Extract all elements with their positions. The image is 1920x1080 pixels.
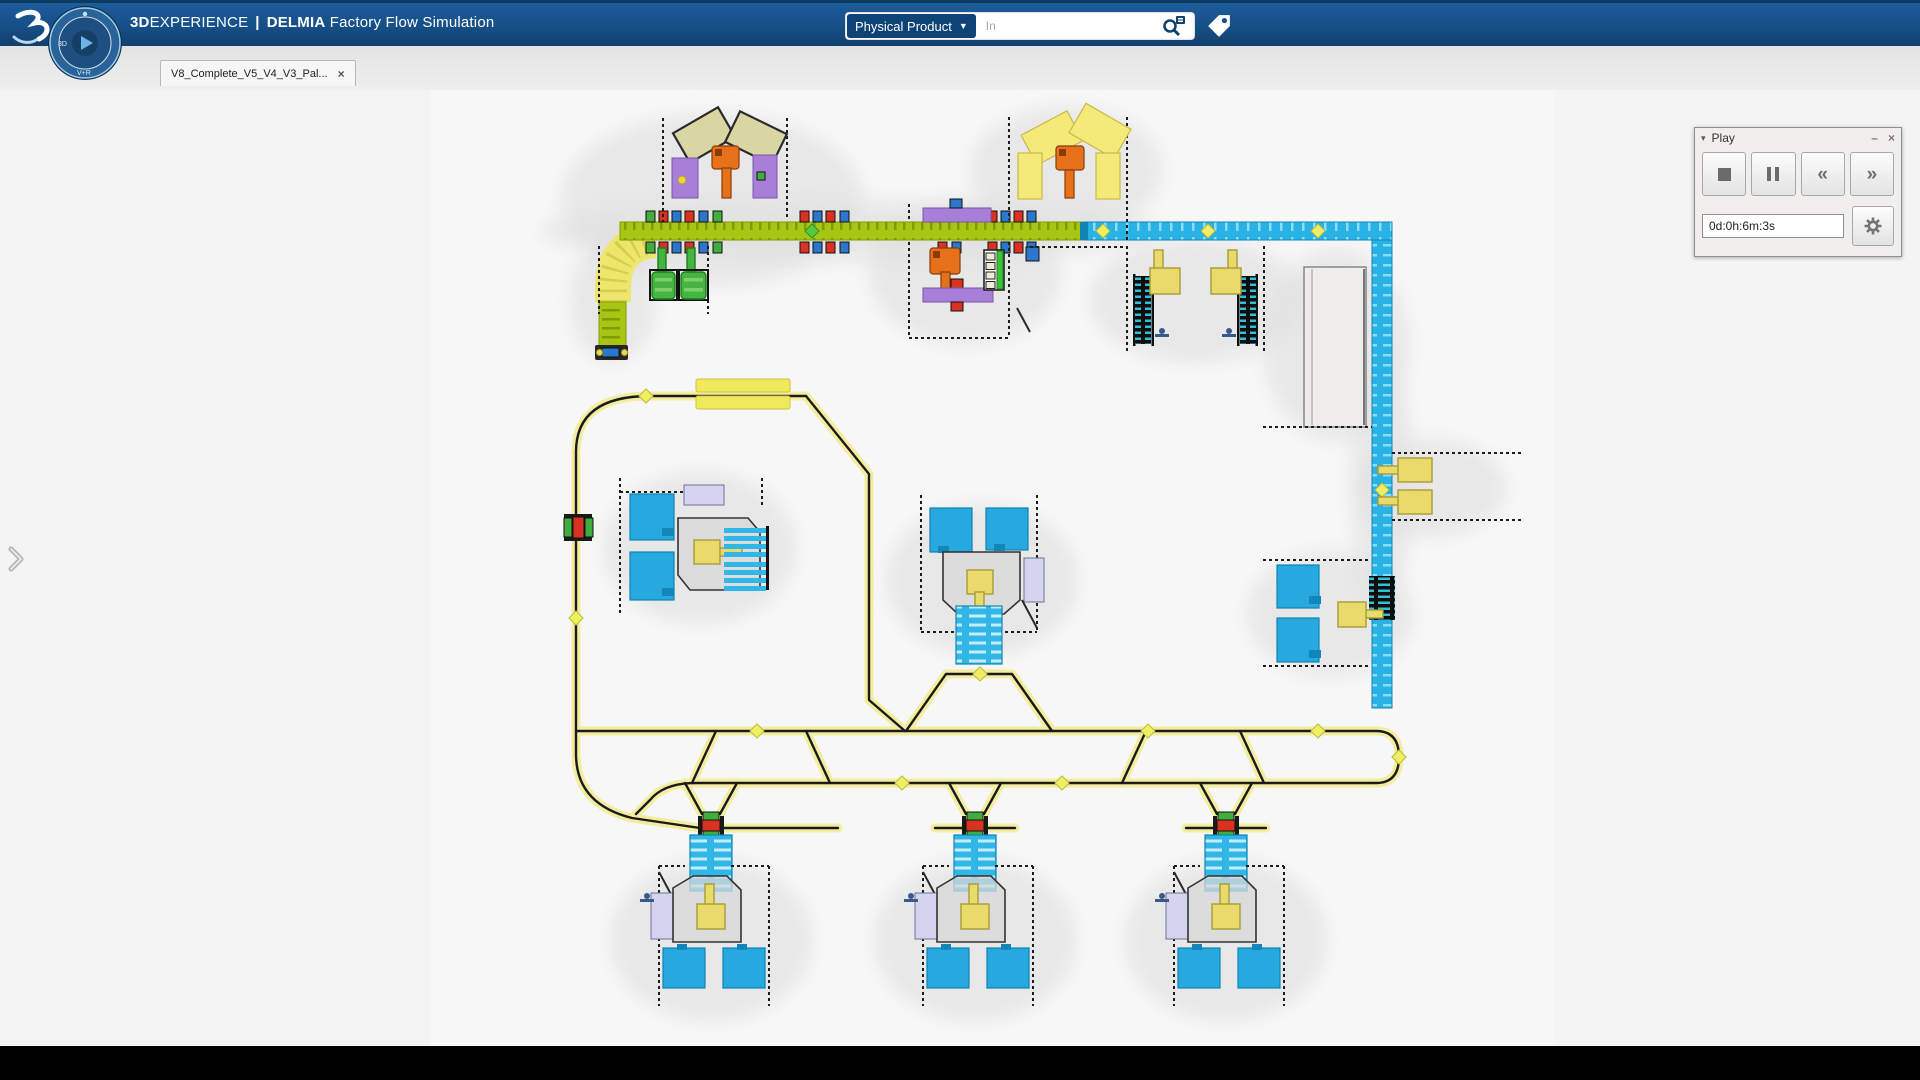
- simulation-time-field[interactable]: [1702, 214, 1844, 238]
- side-panel-expander[interactable]: [4, 544, 28, 579]
- search-input[interactable]: [984, 18, 1161, 34]
- agv-dock-left[interactable]: [564, 514, 593, 541]
- pause-icon: [1767, 167, 1771, 181]
- top-app-bar: 3DEXPERIENCE|DELMIA Factory Flow Simulat…: [0, 0, 1920, 46]
- global-search: Physical Product ▼: [845, 12, 1195, 40]
- bottom-status-bar: [0, 1046, 1920, 1080]
- fast-forward-button[interactable]: »: [1850, 152, 1894, 196]
- pause-button[interactable]: [1751, 152, 1795, 196]
- collapse-triangle-icon[interactable]: ▾: [1701, 133, 1706, 144]
- application-window: 3DEXPERIENCE|DELMIA Factory Flow Simulat…: [0, 0, 1920, 1080]
- play-settings-button[interactable]: [1852, 206, 1894, 246]
- search-magnifier-icon[interactable]: [1161, 15, 1187, 37]
- factory-3d-viewport[interactable]: [0, 0, 1920, 1080]
- stop-icon: [1718, 168, 1731, 181]
- gear-icon: [1862, 215, 1884, 237]
- app-title: 3DEXPERIENCE|DELMIA Factory Flow Simulat…: [130, 14, 494, 31]
- agv-vehicle[interactable]: [595, 345, 628, 360]
- search-scope-dropdown[interactable]: Physical Product ▼: [847, 14, 976, 38]
- stop-button[interactable]: [1702, 152, 1746, 196]
- rewind-icon: «: [1817, 165, 1828, 184]
- document-tab-strip: V8_Complete_V5_V4_V3_Pal... ×: [0, 46, 1920, 90]
- tag-icon[interactable]: [1206, 13, 1232, 39]
- play-panel-header[interactable]: ▾ Play – ×: [1695, 128, 1901, 148]
- fast-forward-icon: »: [1867, 165, 1878, 184]
- minimize-icon[interactable]: –: [1871, 131, 1878, 145]
- rewind-button[interactable]: «: [1801, 152, 1845, 196]
- 3dexperience-compass[interactable]: 3D V+R: [46, 4, 124, 82]
- document-tab[interactable]: V8_Complete_V5_V4_V3_Pal... ×: [160, 60, 356, 86]
- close-icon[interactable]: ×: [1888, 131, 1895, 145]
- document-tab-label: V8_Complete_V5_V4_V3_Pal...: [171, 68, 328, 80]
- pause-icon: [1775, 167, 1779, 181]
- compass-3d-label: 3D: [58, 41, 67, 48]
- tab-close-icon[interactable]: ×: [338, 67, 345, 81]
- chevron-down-icon: ▼: [959, 21, 968, 31]
- compass-vr-label: V+R: [77, 70, 91, 77]
- buffer-rack[interactable]: [984, 250, 1004, 290]
- play-simulation-panel: ▾ Play – × « »: [1694, 127, 1902, 257]
- play-panel-title: Play: [1712, 131, 1862, 145]
